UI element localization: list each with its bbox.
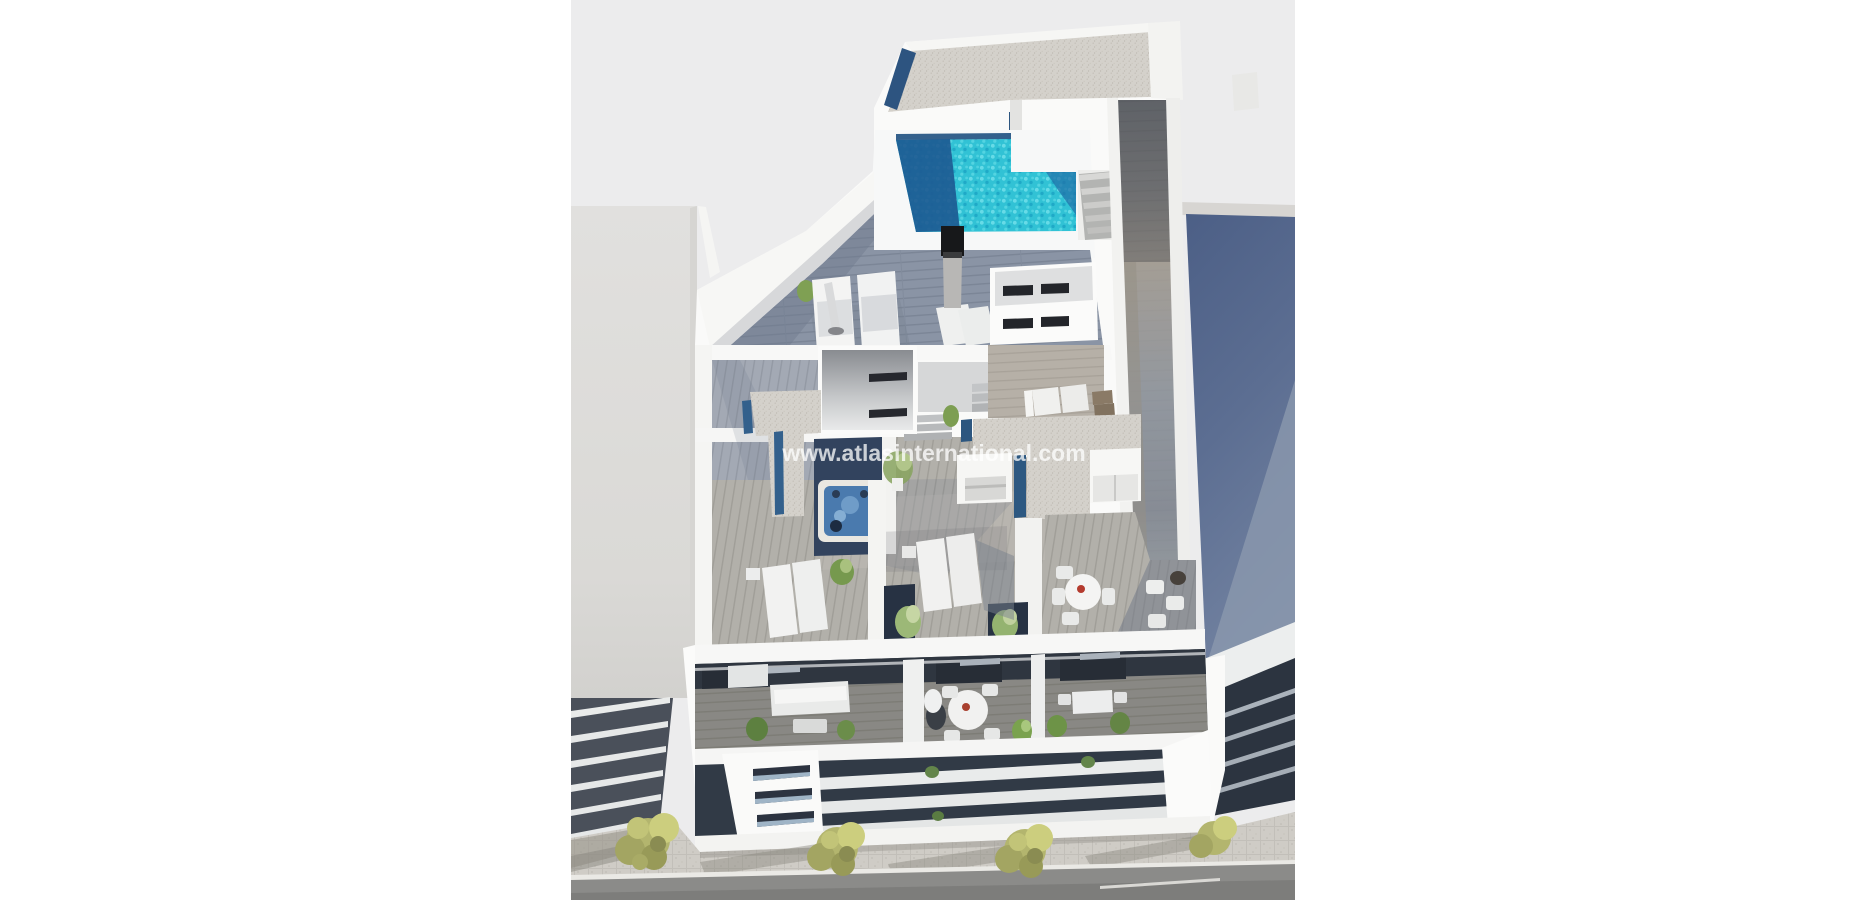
svg-text:www.atlasinternational.com: www.atlasinternational.com	[781, 440, 1085, 466]
